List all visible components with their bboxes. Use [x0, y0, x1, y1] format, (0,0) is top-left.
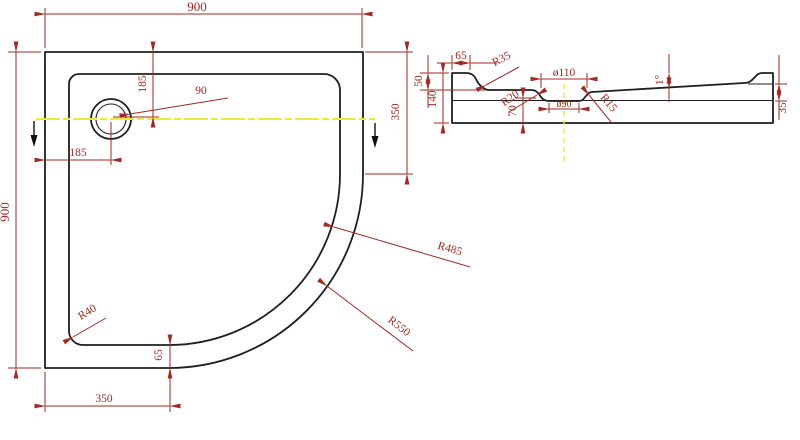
dim-drain-diameter: 90: [195, 85, 207, 97]
dim-overall-width: 900: [187, 0, 207, 14]
dim-waste-top-diameter: ø110: [553, 67, 576, 79]
dim-rim-width-bottom: 65: [153, 349, 165, 361]
dim-basin-depth: 50: [413, 75, 425, 87]
dim-drain-offset-left: 185: [69, 147, 87, 159]
dim-drain-offset-top: 185: [137, 75, 149, 93]
dim-straight-edge-right: 350: [390, 103, 402, 121]
tray-outer-edge: [45, 52, 363, 368]
dim-waste-edge-radius: R15: [598, 92, 620, 115]
shower-tray-technical-drawing: 900 900 185 185 90 R40 65: [0, 0, 800, 440]
top-view-dimensions: 900 900 185 185 90 R40 65: [0, 0, 470, 412]
tray-inner-edge: [69, 74, 340, 345]
dim-overall-height: 900: [0, 202, 12, 222]
dim-rim-flat-width: 65: [455, 50, 467, 62]
dim-rim-corner-radius: R35: [490, 50, 513, 70]
dim-waste-recess-depth: 70: [507, 105, 519, 117]
section-cut-arrow-right: [372, 123, 379, 148]
dim-inner-corner-radius: R40: [76, 302, 99, 322]
section-cut-arrow-left: [31, 121, 38, 147]
drawing-canvas: 900 900 185 185 90 R40 65: [0, 0, 800, 440]
top-view: 900 900 185 185 90 R40 65: [0, 0, 470, 412]
dim-floor-slope-angle: 1°: [654, 74, 666, 85]
section-dimensions: 65 R35 50 140 R20 70 ø110: [413, 50, 789, 123]
top-view-outline: [45, 52, 363, 368]
section-view: 65 R35 50 140 R20 70 ø110: [413, 50, 789, 163]
dim-inner-arc-radius: R485: [436, 240, 464, 258]
dim-overall-height-section: 140: [427, 90, 439, 108]
dim-ledge-height: 35: [777, 102, 789, 114]
dim-outer-arc-radius: R550: [385, 314, 412, 339]
dim-waste-bottom-diameter: ø90: [557, 99, 572, 110]
dim-straight-edge-bottom: 350: [95, 393, 113, 405]
